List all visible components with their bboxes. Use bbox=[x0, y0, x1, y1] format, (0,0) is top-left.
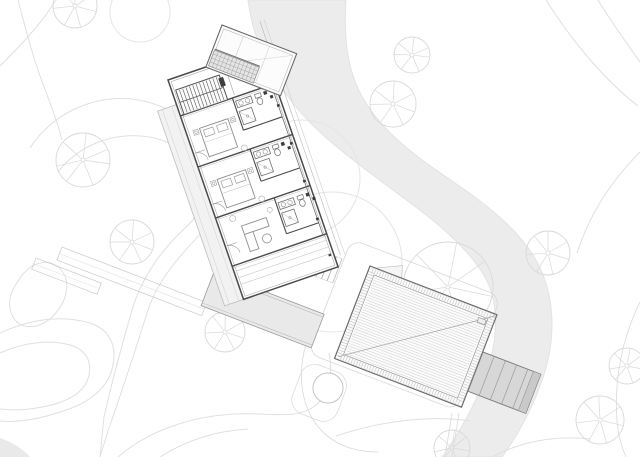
contour-line bbox=[160, 429, 248, 457]
contour-line bbox=[0, 319, 114, 422]
tree-canopy bbox=[110, 0, 170, 42]
tree-symbol bbox=[110, 220, 154, 264]
contour-line bbox=[118, 353, 331, 457]
tree-symbol bbox=[370, 81, 416, 127]
contour-line bbox=[0, 0, 56, 66]
tree-symbol bbox=[609, 348, 640, 384]
contour-line bbox=[0, 342, 90, 410]
contour-line bbox=[598, 0, 640, 62]
site-plan-page: Architectural site plan — hillside house… bbox=[0, 0, 640, 457]
circle-feature bbox=[313, 373, 343, 403]
contour-line bbox=[546, 0, 638, 106]
tree-symbol bbox=[394, 37, 430, 73]
site-plan-drawing bbox=[0, 0, 640, 457]
contour-line bbox=[18, 0, 62, 140]
tree-symbol bbox=[526, 231, 570, 275]
tree-symbol bbox=[53, 0, 97, 28]
contour-line bbox=[577, 152, 640, 253]
tree-symbol bbox=[56, 133, 110, 187]
pond-circle bbox=[313, 373, 343, 403]
corner-shade bbox=[0, 438, 30, 457]
